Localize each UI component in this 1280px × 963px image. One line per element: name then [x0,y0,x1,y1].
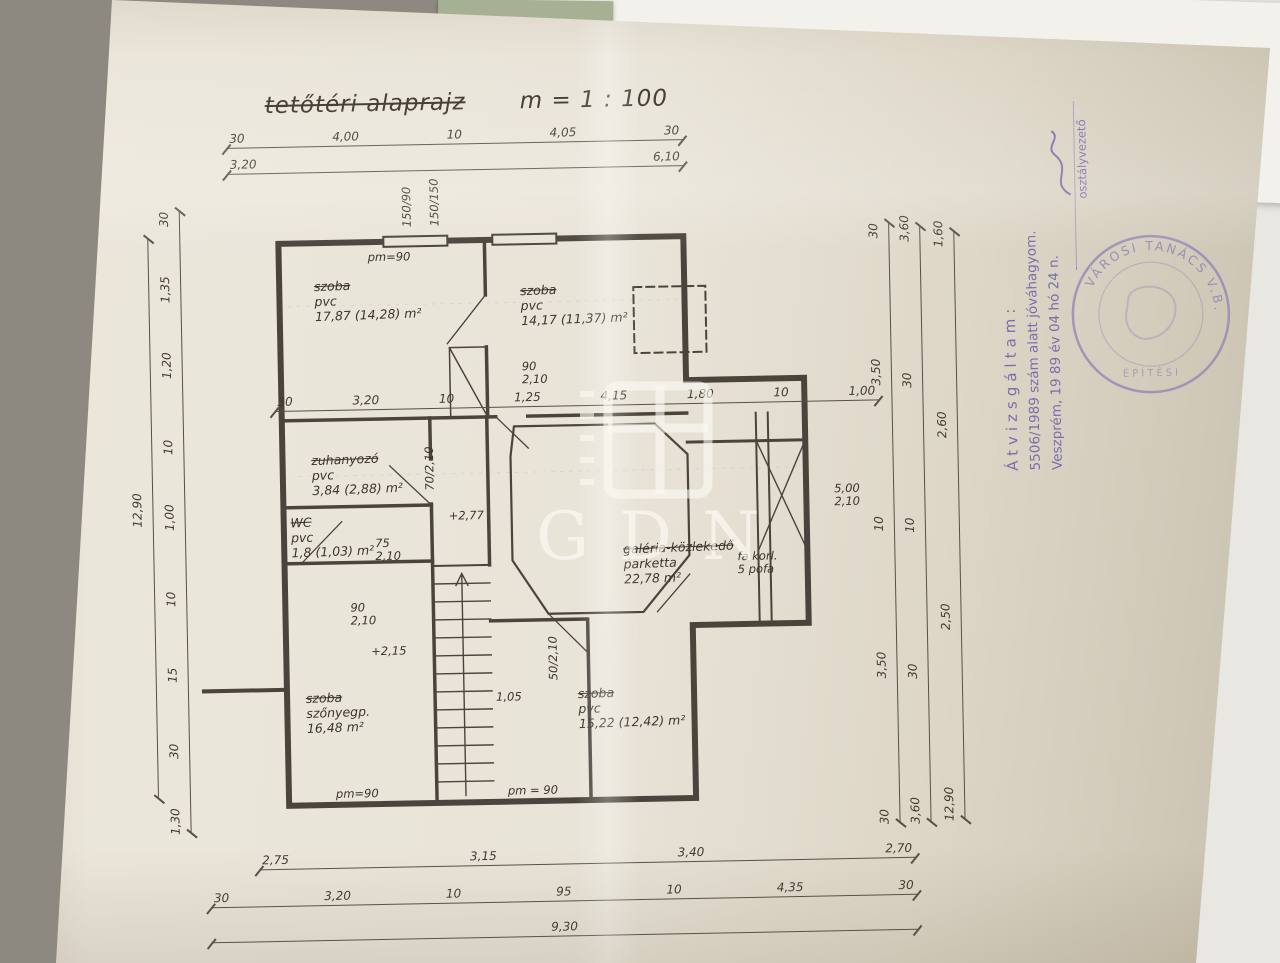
signature-scribble [1043,128,1078,199]
dimension-label: 12,90 [130,512,144,528]
dimension-label: 30 [211,891,233,908]
dimension-note: 1,05 [496,690,522,703]
dimension-label: 3,50 [869,369,883,385]
room-label: WC pvc 1,8 (1,03) m² [290,512,374,560]
dimension-label: 30 [895,878,917,895]
dimension-label: 3,40 [674,845,707,863]
dimension-label: 1,35 [158,287,172,303]
photo-scene: 3265/3326/..donos Fe..Jogosult neve: Bak… [0,0,1280,963]
plan-scale: m = 1 : 100 [520,85,669,114]
dimension-label: 4,35 [774,880,807,898]
dimension-label: 30 [226,131,248,148]
dimension-label: 4,00 [329,129,362,147]
dimension-label: 1,80 [684,387,717,405]
dimension-label: 4,05 [546,125,579,143]
dimension-label: 6,10 [650,149,683,167]
dimension-label: 30 [906,662,920,678]
window-size-label: 150/90 [400,187,414,228]
round-council-seal: VÁROSI TANÁCS V.B. ÉPÍTÉSI [1061,224,1240,403]
dimension-label: 10 [770,385,792,402]
dimension-label: 1,20 [160,363,174,379]
dimension-label: 10 [443,886,465,903]
dimension-label: 10 [161,439,175,455]
dimension-label: 2,70 [882,841,915,859]
dimension-label: 4,15 [597,388,630,406]
dimension-label: 1,60 [931,231,945,247]
dimension-label: 30 [661,123,683,140]
dimension-label: 10 [164,591,178,607]
plan-title-text: tetőtéri alaprajz [264,89,465,119]
parapet-label: pm=90 [336,787,379,801]
railing-note: fa korl. 5 pofa [737,549,778,576]
door-size-label: 90 2,10 [350,601,376,627]
dimension-label: 12,90 [942,805,956,821]
dimension-label: 10 [872,515,886,531]
door-size-label: 75 2,10 [375,537,401,563]
dimension-label: 3,20 [349,393,382,411]
door-size-label: 90 2,10 [522,360,548,386]
dimension-label: 9,30 [548,919,581,937]
dimension-label: 1,00 [163,515,177,531]
dimension-label: 30 [167,743,181,759]
room-label: szoba pvc 14,17 (11,37) m² [520,279,628,328]
floorplan-paper: tetőtéri alaprajz m = 1 : 100 szoba pvc … [0,0,1280,963]
dimension-label: 3,20 [321,889,354,907]
dimension-label: 3,60 [908,808,922,824]
dimension-label: 3,15 [467,849,500,867]
parapet-label: pm=90 [368,250,411,264]
dimension-label: 2,50 [939,614,953,630]
seal-ring-text: VÁROSI TANÁCS V.B. [1081,237,1227,316]
room-label: szoba pvc 17,87 (14,28) m² [314,275,422,324]
room-label: szoba szőnyegp. 16,48 m² [306,689,371,736]
approval-number-text: 5506/1989 szám alatt jóváhagyom. [1021,98,1044,470]
dimension-label: 10 [436,391,458,408]
dimension-label: 30 [877,808,891,824]
dimension-label: 30 [866,222,880,238]
parapet-label: pm = 90 [508,784,558,798]
seal-inner-text: ÉPÍTÉSI [1123,366,1181,380]
level-mark: +2,15 [371,645,406,659]
dimension-label: 3,50 [875,662,889,678]
window-size-label: 150/150 [428,178,442,226]
svg-text:VÁROSI TANÁCS V.B.: VÁROSI TANÁCS V.B. [1081,237,1227,316]
dimension-label: 95 [553,884,575,901]
dimension-label: 30 [900,371,914,387]
door-size-label: 70/2,10 [423,446,437,490]
dimension-label: 1,25 [511,390,544,408]
dimension-label: 3,60 [897,226,911,242]
dimension-label: 2,75 [259,853,292,871]
opening-size-label: 5,00 2,10 [834,482,860,508]
dimension-label: 10 [444,127,466,144]
dimension-label: 15 [165,667,179,683]
room-label: szoba pvc 15,22 (12,42) m² [578,682,686,731]
dimension-label: 10 [903,517,917,533]
room-label: zuhanyozó pvc 3,84 (2,88) m² [311,450,403,498]
dimension-label: 30 [274,395,296,412]
door-size-label: 50/2,10 [547,636,561,680]
seal-coat-of-arms [1125,286,1176,339]
dimension-label: 10 [663,882,685,899]
dimension-label: 3,20 [227,157,260,175]
level-mark: +2,77 [449,509,484,523]
dimension-label: 2,60 [935,422,949,438]
floorplan-content: tetőtéri alaprajz m = 1 : 100 szoba pvc … [0,0,1280,963]
dimension-label: 1,00 [845,383,878,401]
dimension-label: 30 [157,211,171,227]
dimension-label: 1,30 [168,819,182,835]
